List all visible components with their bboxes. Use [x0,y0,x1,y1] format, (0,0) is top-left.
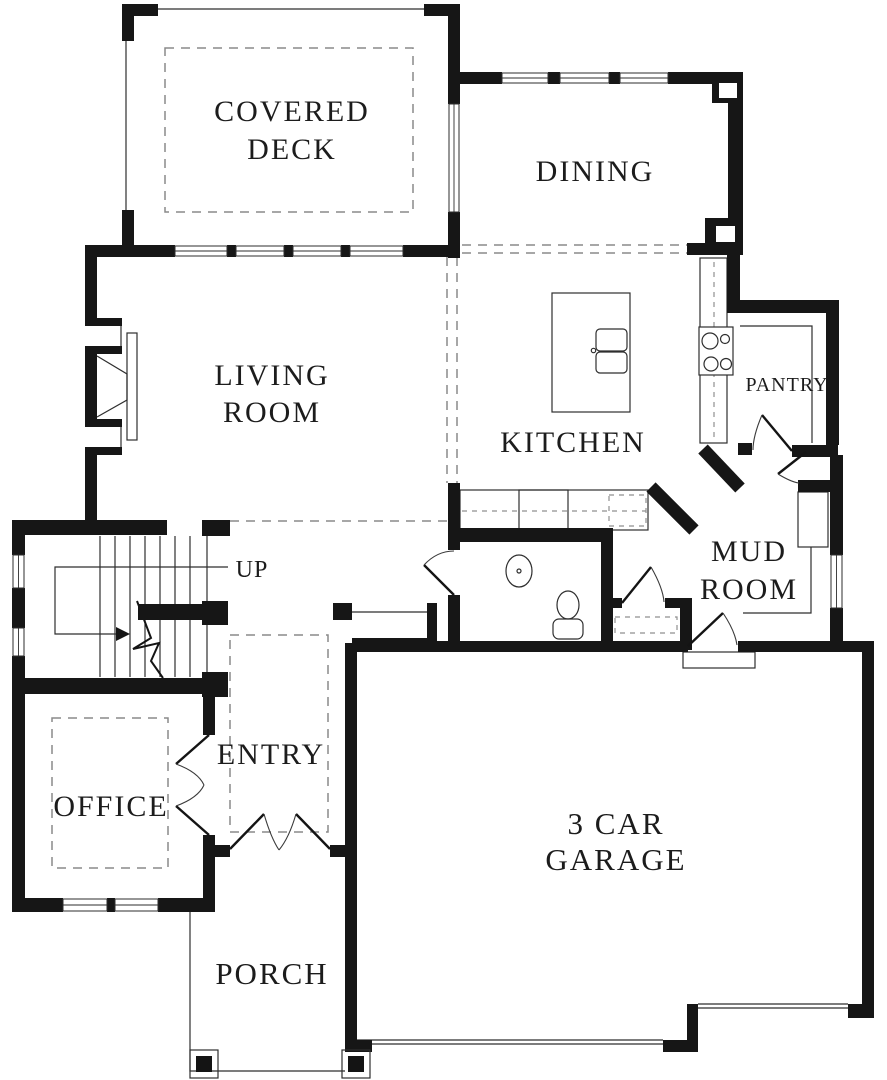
dining-ne-column-notch [719,83,737,98]
wall-chamfers [651,449,740,530]
pantry-door [753,415,792,451]
room-label-mud-1: MUD [711,535,787,568]
room-label-living-1: LIVING [214,359,329,392]
room-label-garage-2: GARAGE [545,842,686,877]
island-sink [552,293,630,412]
room-label-dining: DINING [536,155,655,188]
closet-door [622,567,664,603]
room-label-mud-2: ROOM [700,573,798,606]
living-kitchen-break-dashed [447,257,457,483]
fireplace-hearth [127,333,137,440]
stairs [55,522,228,678]
stair-up-arrowhead [116,627,130,641]
room-label-covered-deck-2: DECK [247,133,337,166]
stair-label-up: UP [236,557,269,583]
windows-layer [13,73,842,911]
porch-outline [190,912,345,1071]
mudroom-garage-door [688,613,737,646]
closet-shelf-dashed [615,617,677,633]
garage-door-right [698,1004,848,1008]
porch-columns [190,1050,370,1078]
toilet [553,591,583,639]
room-label-porch: PORCH [215,956,328,991]
kitchen-counter-south [460,490,648,530]
cooktop [699,327,733,375]
dining-kitchen-break-dashed [462,245,687,253]
entry-ceiling-dashed [230,635,328,832]
deck-ceiling-dashed [165,48,413,212]
room-label-living-2: ROOM [223,396,321,429]
room-label-kitchen: KITCHEN [500,426,646,459]
floor-plan-page: COVERED DECK DINING LIVING ROOM KITCHEN … [0,0,887,1080]
room-label-garage-1: 3 CAR [568,806,665,841]
floor-plan-drawing: COVERED DECK DINING LIVING ROOM KITCHEN … [0,0,887,1080]
room-label-office: OFFICE [53,790,168,823]
doors-layer [176,415,806,850]
mud-door-stoop [683,652,755,668]
powder-door [424,551,454,595]
mudroom-cabinet [798,492,828,547]
firebox [97,356,127,417]
room-label-entry: ENTRY [217,738,325,771]
dining-se-column-notch [716,226,735,242]
room-label-pantry: PANTRY [745,374,828,396]
room-label-covered-deck-1: COVERED [214,95,370,128]
powder-sink [506,555,532,587]
office-double-doors [176,735,209,835]
walls-layer [12,4,874,1052]
garage-door-left [357,1040,663,1044]
